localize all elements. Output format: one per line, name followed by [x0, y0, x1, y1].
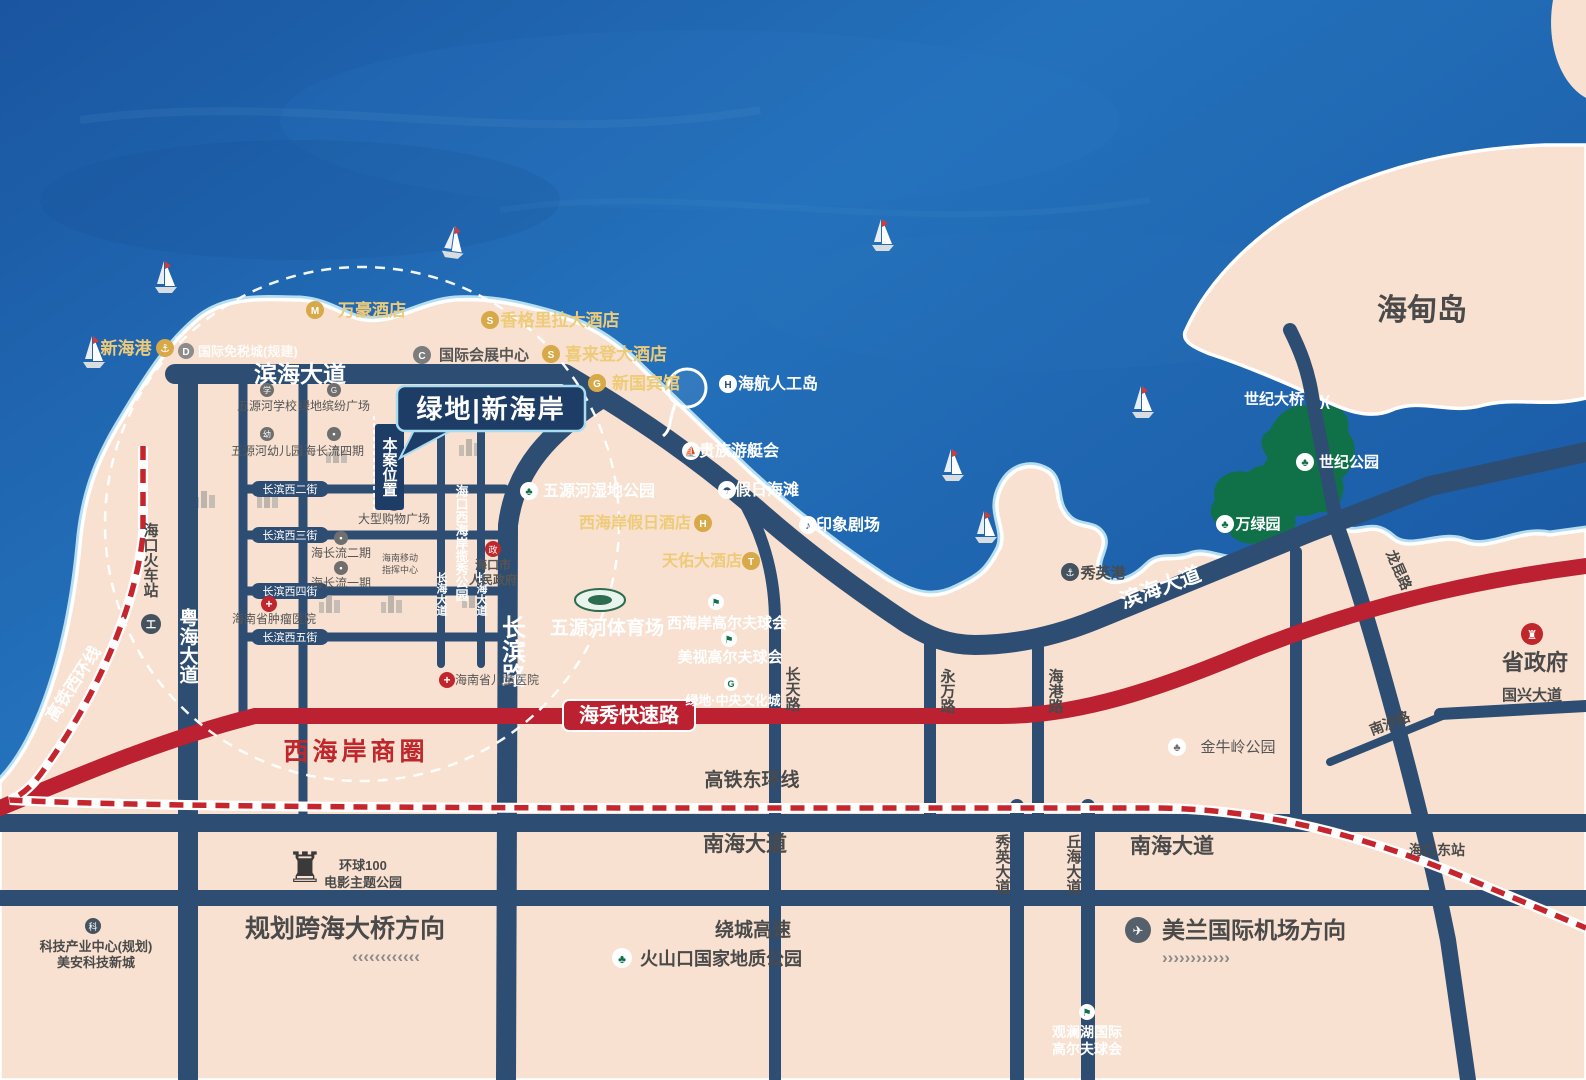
shangrila-label: 香格里拉大酒店 — [501, 310, 620, 330]
street-label-w5: 长滨西五街 — [263, 630, 318, 644]
prov-gov-label: 省政府 — [1501, 650, 1568, 675]
tech-center-glyph: 科 — [88, 921, 97, 932]
shangrila-glyph: S — [487, 316, 494, 327]
stadium-icon — [575, 589, 625, 611]
city-gov-label-2: 人民政府 — [469, 572, 517, 587]
wanlv-glyph: ♣ — [1221, 519, 1228, 531]
hna-glyph: H — [724, 380, 731, 391]
hna-island-label: 海航人工岛 — [738, 374, 818, 393]
road-label-changtian: 长天路 — [784, 666, 801, 712]
site-marker-label: 本案位置 — [381, 436, 399, 497]
xiuying-port-glyph: ⚓ — [1066, 568, 1075, 579]
prov-gov-glyph: ♜ — [1527, 628, 1538, 642]
duty-free-glyph: D — [182, 347, 189, 358]
hcl1-label: 海长流一期 — [311, 575, 371, 590]
east-station-label: 海口东站 — [1409, 842, 1465, 858]
airport-plane-glyph: ✈ — [1133, 923, 1144, 938]
railway-station-label: 海口火车站 — [142, 522, 159, 599]
tumor-hospital-label: 海南省肿瘤医院 — [232, 611, 316, 626]
duty-free-label: 国际免税城(规建) — [198, 344, 298, 359]
marriott-label: 万豪酒店 — [337, 300, 406, 320]
holiday-beach-label: 假日海滩 — [735, 480, 799, 499]
tianyou-hotel-label: 天佑大酒店 — [662, 551, 742, 570]
xinhai-port-label: 新海港 — [101, 338, 153, 358]
movie-park-label-1: 环球100 — [339, 858, 387, 873]
map-canvas: 滨海大道 滨海大道 粤海大道 长滨路 长海大道 长海大道 长天路 永万路 海港路… — [0, 0, 1586, 1080]
wetland-glyph: ♣ — [525, 486, 532, 498]
road-label-qiuhai: 丘海大道 — [1065, 834, 1082, 894]
city-gov-glyph: 政 — [488, 544, 497, 555]
movie-park-label-2: 电影主题公园 — [324, 875, 402, 890]
location-map: 滨海大道 滨海大道 粤海大道 长滨路 长海大道 长海大道 长天路 永万路 海港路… — [0, 0, 1586, 1080]
century-park-glyph: ♣ — [1301, 457, 1308, 469]
guesthouse-label: 新国宾馆 — [612, 373, 680, 393]
hcl2-label: 海长流二期 — [311, 545, 371, 560]
hcl1-glyph: • — [339, 563, 342, 573]
project-name-label: 绿地|新海岸 — [416, 394, 565, 424]
stadium-label: 五源河体育场 — [550, 616, 664, 639]
road-label-nanhai-east: 南海大道 — [1130, 834, 1214, 858]
business-circle-label: 西海岸商圈 — [283, 737, 428, 766]
yacht-club-label: 贵族游艇会 — [699, 441, 779, 460]
mobile-center-label-2: 指挥中心 — [382, 564, 418, 575]
lvdi-plaza-glyph: G — [331, 386, 337, 395]
guesthouse-glyph: G — [593, 379, 601, 390]
street-label-w3: 长滨西三街 — [263, 528, 318, 542]
bridge-direction-label: 规划跨海大桥方向 — [245, 914, 445, 943]
volcano-park-label: 火山口国家地质公园 — [640, 948, 802, 969]
yacht-glyph: ⛵ — [685, 445, 697, 458]
children-hospital-label: 海南省儿童医院 — [455, 672, 539, 687]
kindergarten-glyph: 幼 — [263, 429, 271, 439]
volcano-glyph: ♣ — [618, 952, 626, 966]
road-label-haixiu: 海秀快速路 — [579, 703, 680, 727]
tumor-cross-glyph: + — [265, 597, 272, 611]
culture-glyph: G — [727, 679, 734, 689]
mobile-center-label-1: 海南移动 — [382, 552, 418, 563]
road-label-changhai-w: 长海大道 — [435, 571, 448, 617]
century-bridge-icon: )( — [1320, 393, 1330, 410]
holiday-inn-label: 西海岸假日酒店 — [579, 513, 691, 532]
mission-hills-label-1: 观澜湖国际 — [1052, 1024, 1122, 1040]
road-guoxing — [1440, 706, 1586, 714]
street-label-w2: 长滨西二街 — [263, 482, 318, 496]
road-label-haigang: 海港路 — [1047, 668, 1064, 714]
ribbon-park-label: 海口西海岸揽秀公园 — [454, 484, 470, 603]
road-label-xiuying-ave: 秀英大道 — [994, 833, 1012, 894]
road-label-hsr-east: 高铁东环线 — [704, 768, 799, 791]
road-label-raocheng: 绕城高速 — [715, 918, 791, 941]
lvdi-plaza-label: 绿地缤纷广场 — [298, 398, 370, 413]
road-label-guoxing: 国兴大道 — [1502, 686, 1562, 704]
jinniuling-glyph: ♣ — [1173, 742, 1180, 754]
mall-label: 大型购物广场 — [358, 511, 430, 526]
hcl4-label: 海长流四期 — [304, 443, 364, 458]
hcl4-glyph: • — [332, 429, 335, 439]
impression-theatre-label: 印象剧场 — [816, 515, 880, 534]
tianyou-glyph: T — [748, 557, 754, 568]
convention-glyph: C — [418, 351, 425, 362]
road-label-nanhai-west: 南海大道 — [703, 832, 787, 856]
city-gov-label-1: 海口市 — [475, 557, 511, 572]
mission-hills-label-2: 高尔夫球会 — [1052, 1041, 1123, 1057]
tech-center-label-1: 科技产业中心(规划) — [40, 939, 153, 954]
children-cross-glyph: + — [443, 673, 450, 687]
airport-direction-chevrons: ›››››››››››› — [1162, 948, 1230, 967]
road-label-yongwan: 永万路 — [939, 668, 957, 714]
wc-golf-glyph: ⚑ — [712, 598, 721, 609]
west-coast-golf-label: 西海岸高尔夫球会 — [667, 614, 787, 632]
wetland-park-label: 五源河湿地公园 — [543, 481, 655, 500]
movie-park-castle-icon: ♜ — [286, 844, 324, 891]
sheraton-label: 喜来登大酒店 — [565, 344, 667, 364]
school-glyph: 学 — [263, 385, 271, 395]
haixiu-label: 海秀快速路 — [563, 700, 695, 731]
railway-station-glyph: 工 — [146, 620, 156, 631]
greenland-culture-label: 绿地·中央文化城 — [685, 693, 780, 708]
theatre-glyph: ♪ — [805, 520, 811, 532]
tech-center-label-2: 美安科技新城 — [57, 955, 135, 970]
meishi-glyph: ⚑ — [725, 635, 734, 646]
haidian-island-label: 海甸岛 — [1377, 294, 1467, 327]
century-bridge-label: 世纪大桥 — [1244, 390, 1305, 408]
jinniuling-label: 金牛岭公园 — [1200, 739, 1275, 756]
road-label-yuehai: 粤海大道 — [177, 607, 199, 685]
airport-direction-label: 美兰国际机场方向 — [1162, 917, 1346, 943]
century-park-label: 世纪公园 — [1319, 453, 1379, 471]
xiuying-port-label: 秀英港 — [1079, 564, 1126, 582]
marriott-glyph: M — [311, 306, 319, 317]
bridge-direction-chevrons: ‹‹‹‹‹‹‹‹‹‹‹‹ — [352, 947, 420, 966]
school-label: 五源河学校 — [237, 398, 297, 413]
hcl2-glyph: • — [339, 533, 342, 543]
mission-hills-glyph: ⚑ — [1083, 1008, 1092, 1019]
beach-glyph: ☂ — [723, 486, 732, 497]
sheraton-glyph: S — [548, 350, 555, 361]
wanlv-park-label: 万绿园 — [1234, 515, 1280, 533]
meishi-golf-label: 美视高尔夫球会 — [677, 648, 782, 666]
holiday-inn-glyph: H — [699, 519, 706, 530]
convention-center-label: 国际会展中心 — [439, 346, 529, 364]
kindergarten-label: 五源河幼儿园 — [231, 444, 303, 458]
xinhai-anchor-glyph: ⚓ — [160, 343, 170, 355]
street-label-w4: 长滨西四街 — [263, 584, 318, 598]
